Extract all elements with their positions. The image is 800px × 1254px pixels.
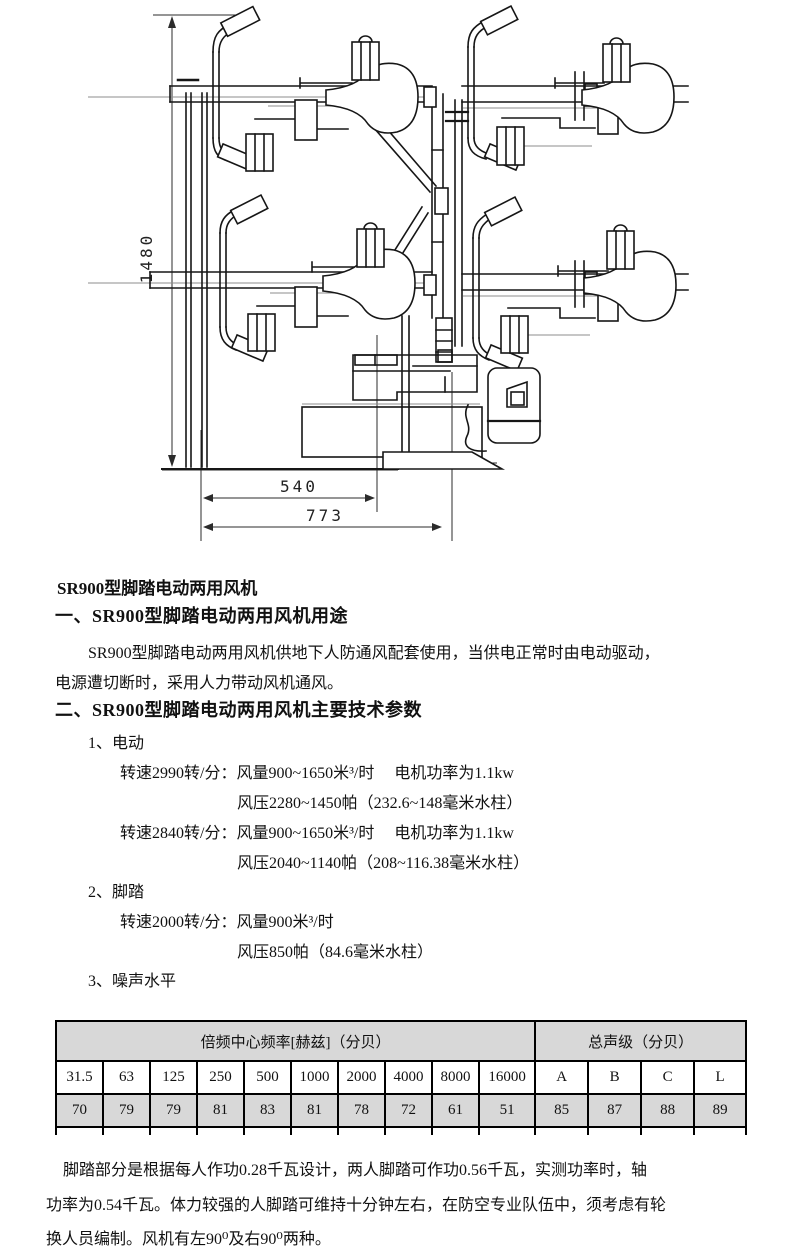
total-value: 87 [588, 1094, 641, 1127]
dim-label-540: 540 [280, 477, 318, 496]
total-value: 88 [641, 1094, 694, 1127]
freq-label: 2000 [338, 1061, 385, 1094]
dim-label-height: 1480 [137, 233, 156, 284]
spec-item1-label: 1、电动 [88, 733, 144, 755]
dim-label-773: 773 [306, 506, 344, 525]
footer-line-2: 功率为0.54千瓦。体力较强的人脚踏可维持十分钟左右，在防空专业队伍中，须考虑有… [46, 1195, 666, 1217]
freq-label: 16000 [479, 1061, 535, 1094]
total-header-cell: 总声级（分贝） [535, 1021, 746, 1061]
freq-label: 63 [103, 1061, 150, 1094]
total-value: 89 [694, 1094, 746, 1127]
freq-value: 78 [338, 1094, 385, 1127]
total-label: B [588, 1061, 641, 1094]
footer-line-1: 脚踏部分是根据每人作功0.28千瓦设计，两人脚踏可作功0.56千瓦，实测功率时，… [63, 1160, 647, 1182]
freq-label: 31.5 [56, 1061, 103, 1094]
spec-item3-label: 3、噪声水平 [88, 971, 176, 993]
freq-value: 79 [150, 1094, 197, 1127]
total-value: 85 [535, 1094, 588, 1127]
freq-value: 51 [479, 1094, 535, 1127]
freq-value: 61 [432, 1094, 479, 1127]
freq-label: 500 [244, 1061, 291, 1094]
total-label: A [535, 1061, 588, 1094]
total-label: L [694, 1061, 746, 1094]
pedal-spec-line1: 转速2000转/分：风量900米³/时 [120, 912, 334, 934]
freq-value: 72 [385, 1094, 432, 1127]
section2-heading: 二、SR900型脚踏电动两用风机主要技术参数 [55, 699, 422, 721]
section1-heading: 一、SR900型脚踏电动两用风机用途 [55, 605, 348, 627]
page-title: SR900型脚踏电动两用风机 [57, 578, 257, 600]
electric-spec-line1: 转速2990转/分：风量900~1650米³/时 电机功率为1.1kw [120, 763, 514, 785]
pedal-spec-line2: 风压850帕（84.6毫米水柱） [237, 942, 433, 964]
freq-label: 8000 [432, 1061, 479, 1094]
noise-level-table: 倍频中心频率[赫兹]（分贝） 总声级（分贝） 31.5 63 125 250 5… [55, 1020, 747, 1135]
freq-label: 1000 [291, 1061, 338, 1094]
total-label: C [641, 1061, 694, 1094]
document-page: 1480 540 773 [0, 0, 800, 1254]
electric-spec-line3: 转速2840转/分：风量900~1650米³/时 电机功率为1.1kw [120, 823, 514, 845]
freq-label: 250 [197, 1061, 244, 1094]
table-header-row: 倍频中心频率[赫兹]（分贝） 总声级（分贝） [56, 1021, 746, 1061]
footer-line-3: 换人员编制。风机有左90⁰及右90⁰两种。 [46, 1229, 331, 1251]
intro-line-2: 电源遭切断时，采用人力带动风机通风。 [55, 673, 343, 695]
freq-header-cell: 倍频中心频率[赫兹]（分贝） [56, 1021, 535, 1061]
table-label-row: 31.5 63 125 250 500 1000 2000 4000 8000 … [56, 1061, 746, 1094]
electric-spec-line4: 风压2040~1140帕（208~116.38毫米水柱） [237, 853, 529, 875]
freq-value: 79 [103, 1094, 150, 1127]
table-value-row: 70 79 79 81 83 81 78 72 61 51 85 87 88 8… [56, 1094, 746, 1127]
electric-spec-line2: 风压2280~1450帕（232.6~148毫米水柱） [237, 793, 522, 815]
spec-item2-label: 2、脚踏 [88, 882, 144, 904]
freq-value: 70 [56, 1094, 103, 1127]
freq-value: 83 [244, 1094, 291, 1127]
freq-label: 125 [150, 1061, 197, 1094]
freq-value: 81 [197, 1094, 244, 1127]
intro-line-1: SR900型脚踏电动两用风机供地下人防通风配套使用，当供电正常时由电动驱动， [88, 643, 660, 665]
table-cutoff-stub-row [56, 1127, 746, 1135]
fan-drawing: 1480 540 773 [0, 0, 800, 560]
freq-value: 81 [291, 1094, 338, 1127]
fan-base-assembly [162, 350, 540, 469]
freq-label: 4000 [385, 1061, 432, 1094]
